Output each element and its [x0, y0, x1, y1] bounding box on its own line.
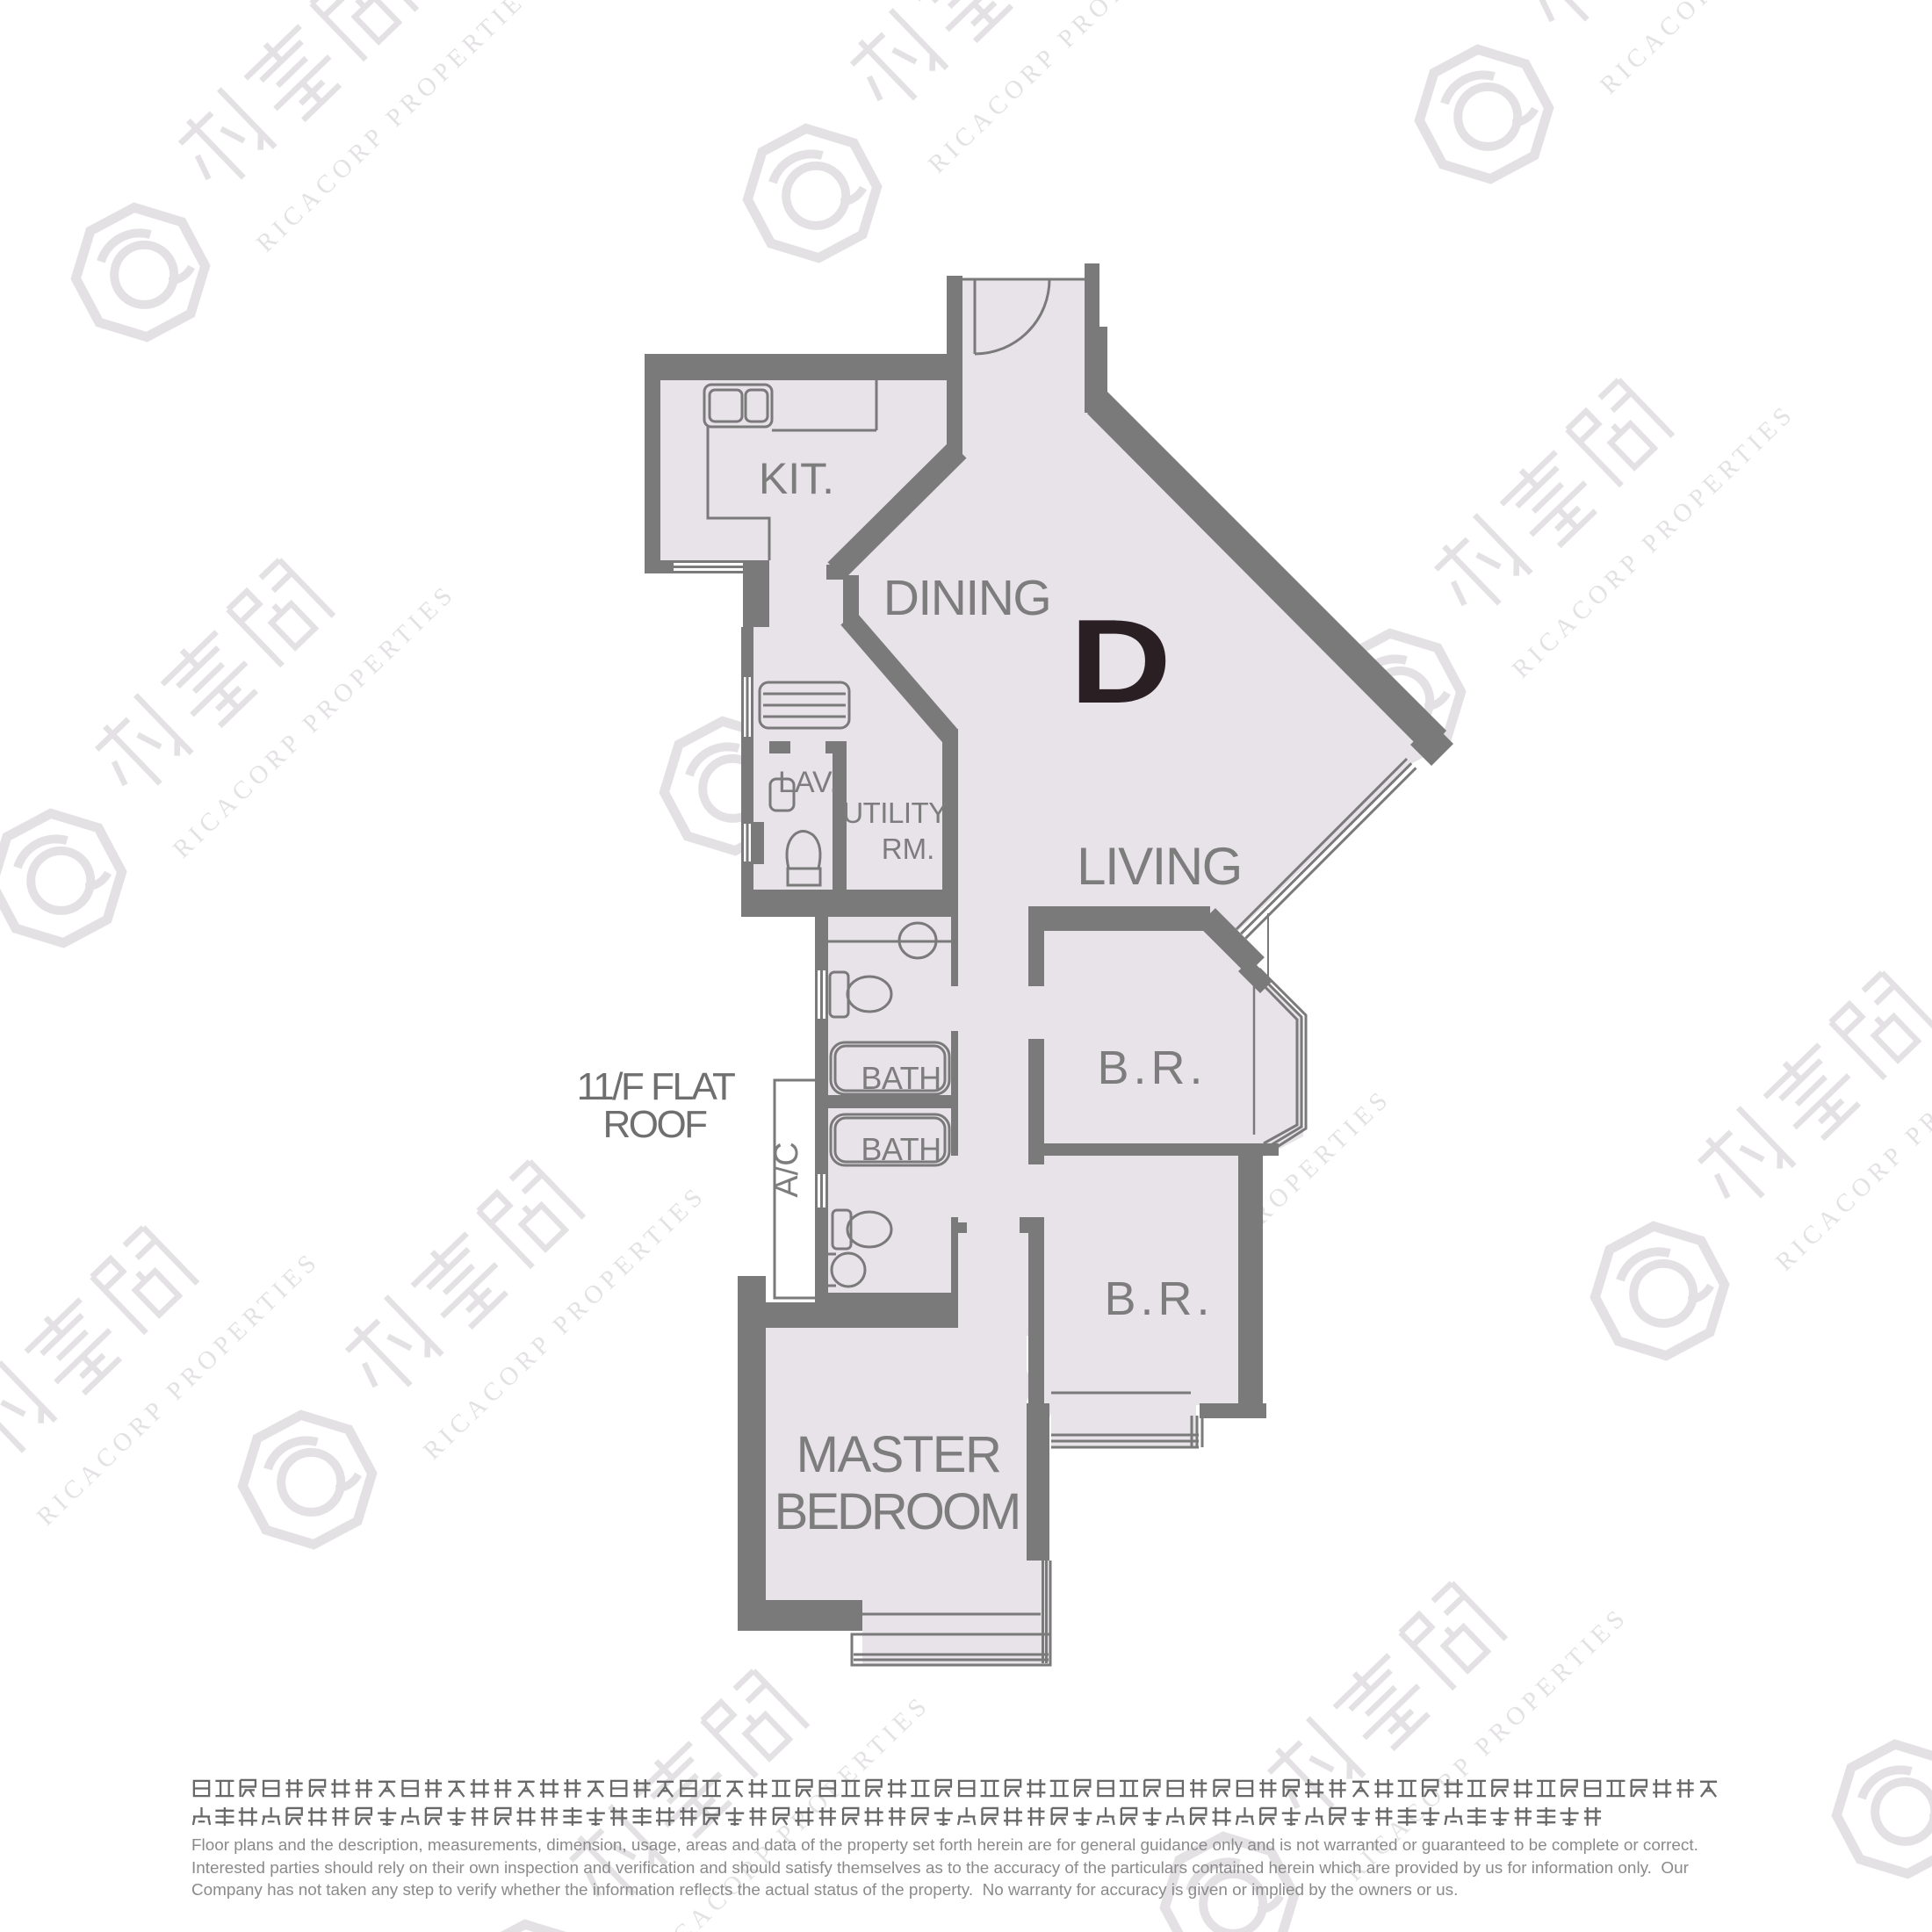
svg-text:MASTER: MASTER	[797, 1426, 1001, 1483]
svg-text:UTILITY: UTILITY	[842, 797, 948, 829]
svg-text:ROOF: ROOF	[602, 1103, 707, 1146]
svg-text:LAV.: LAV.	[778, 766, 838, 799]
svg-text:Company has not taken any step: Company has not taken any step to verify…	[191, 1881, 1458, 1900]
svg-text:D: D	[1070, 595, 1171, 729]
svg-text:B.R.: B.R.	[1097, 1042, 1207, 1094]
svg-text:Floor plans and the descriptio: Floor plans and the description, measure…	[191, 1836, 1698, 1855]
svg-text:DINING: DINING	[883, 570, 1051, 626]
svg-text:RM.: RM.	[882, 833, 935, 865]
svg-text:BATH: BATH	[861, 1131, 941, 1167]
svg-text:KIT.: KIT.	[759, 454, 834, 503]
svg-text:11/F FLAT: 11/F FLAT	[577, 1065, 735, 1108]
svg-text:BATH: BATH	[861, 1060, 941, 1096]
svg-text:LIVING: LIVING	[1077, 837, 1242, 896]
svg-text:B.R.: B.R.	[1104, 1272, 1214, 1325]
svg-text:BEDROOM: BEDROOM	[775, 1483, 1020, 1540]
svg-text:Interested parties should rely: Interested parties should rely on their …	[191, 1859, 1689, 1878]
svg-text:A/C: A/C	[768, 1142, 805, 1197]
